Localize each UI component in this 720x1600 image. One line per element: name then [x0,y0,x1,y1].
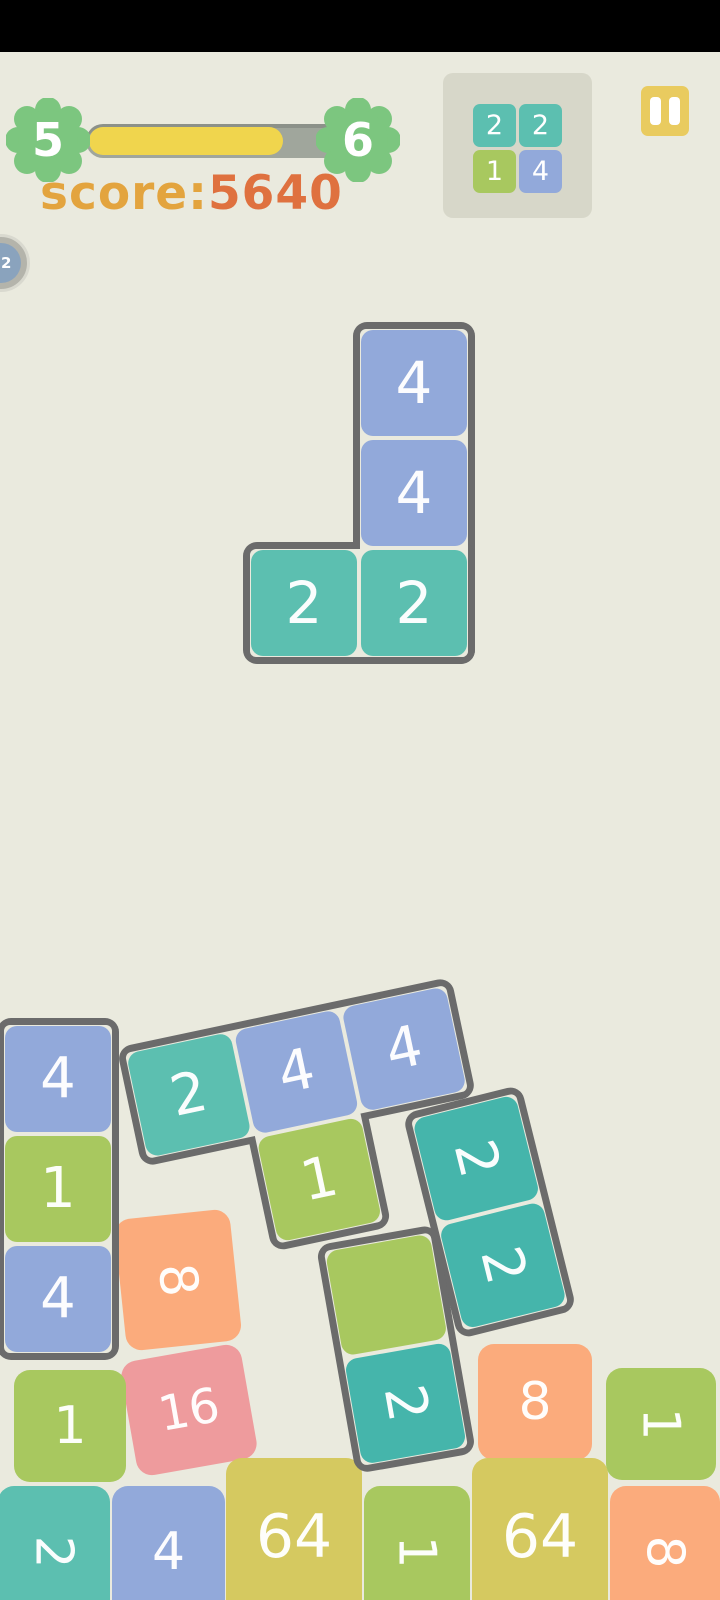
tile-8: 8 [610,1486,720,1600]
tile-value: 2 [471,1241,534,1289]
score-label: score: [40,166,208,221]
tile-4[interactable]: 4 [361,440,467,546]
tile-value: 4 [381,1018,428,1080]
tile-value: 1 [53,1400,86,1452]
tile-4: 4 [234,1009,360,1135]
preview-tile-2: 2 [473,104,516,147]
tile-2: 2 [126,1032,252,1158]
tile-value: 1 [40,1161,76,1217]
tile-4: 4 [341,986,467,1112]
tile-value: 64 [502,1507,578,1567]
tile-8: 8 [478,1344,592,1460]
next-piece-preview: 2214 [443,73,592,218]
tile-64: 64 [226,1458,362,1600]
rank-badge: 22 [0,234,30,292]
tile-value: 2 [396,574,433,632]
tile-8: 8 [113,1208,242,1351]
tile-value: 1 [391,1535,443,1568]
tile-blank [325,1234,448,1357]
game-screen: 5 6 score:5640 2214 22 81618124641648442… [0,0,720,1600]
tile-value: 8 [150,1261,205,1299]
tile-1: 1 [256,1117,382,1243]
preview-tile-2: 2 [519,104,562,147]
tile-value: 64 [256,1507,332,1567]
tile-value: 1 [486,156,503,187]
next-piece-grid: 2214 [473,104,565,193]
tile-64: 64 [472,1458,608,1600]
tile-value: 2 [286,574,323,632]
level-progress-fill [89,127,283,155]
rank-badge-value: 22 [0,243,21,283]
tile-4: 4 [5,1246,111,1352]
tile-2: 2 [344,1342,467,1465]
tile-2: 2 [0,1486,110,1600]
tile-value: 4 [40,1051,76,1107]
tile-1: 1 [5,1136,111,1242]
tile-value: 2 [166,1064,213,1126]
tile-value: 2 [375,1381,436,1426]
tile-1: 1 [606,1368,716,1480]
tile-value: 4 [40,1271,76,1327]
pause-icon [669,97,680,125]
tile-value: 2 [486,110,503,141]
tile-4: 4 [112,1486,225,1600]
tile-4[interactable]: 4 [361,330,467,436]
tile-value: 8 [639,1535,691,1568]
tile-2[interactable]: 2 [251,550,357,656]
preview-tile-4: 4 [519,150,562,193]
tile-4: 4 [5,1026,111,1132]
tile-value: 4 [396,354,433,412]
tile-value: 2 [445,1135,508,1183]
score-value: 5640 [208,166,343,221]
tile-value: 8 [518,1376,551,1428]
tile-1: 1 [364,1486,470,1600]
tile-value: 4 [532,156,549,187]
score-line: score:5640 [40,166,343,221]
tile-value: 1 [296,1148,343,1210]
tile-value: 4 [396,464,433,522]
tile-value: 2 [532,110,549,141]
status-bar [0,0,720,52]
tile-value: 1 [635,1407,687,1440]
tile-value: 16 [155,1381,223,1439]
pause-button[interactable] [641,86,689,136]
preview-tile-1: 1 [473,150,516,193]
pause-icon [650,97,661,125]
tile-2[interactable]: 2 [361,550,467,656]
tile-1: 1 [14,1370,126,1482]
tile-value: 4 [273,1041,320,1103]
tile-value: 4 [152,1526,185,1578]
tile-value: 2 [28,1535,80,1568]
